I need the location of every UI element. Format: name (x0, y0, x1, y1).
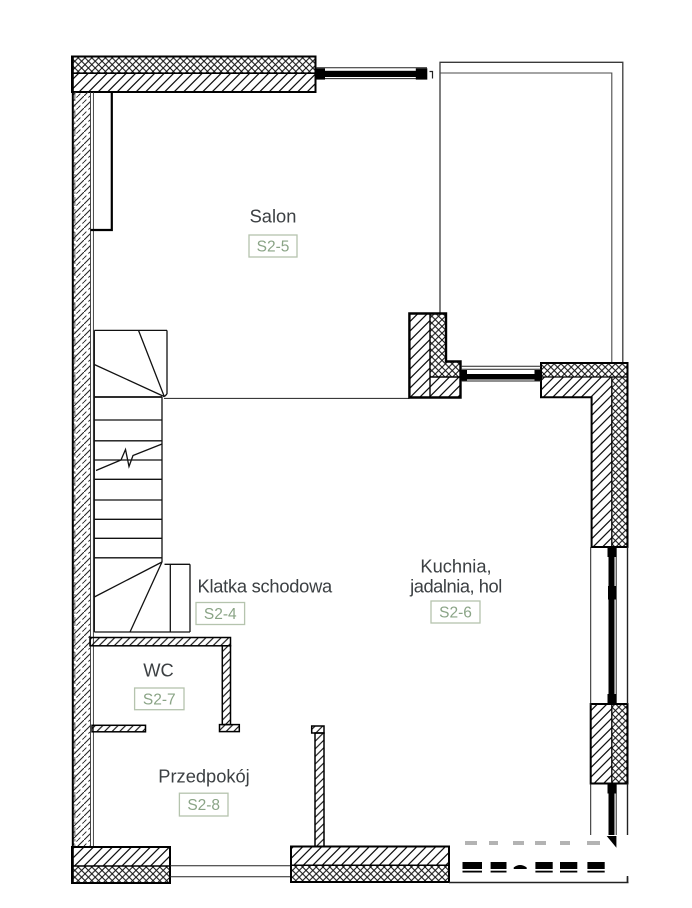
svg-text:jadalnia, hol: jadalnia, hol (409, 575, 502, 596)
svg-text:S2-8: S2-8 (187, 797, 220, 814)
svg-text:S2-5: S2-5 (257, 239, 290, 256)
svg-text:S2-4: S2-4 (204, 606, 237, 623)
svg-text:S2-6: S2-6 (439, 604, 472, 621)
svg-text:Kuchnia,: Kuchnia, (420, 555, 491, 576)
svg-text:WC: WC (143, 660, 173, 681)
svg-text:S2-7: S2-7 (143, 691, 176, 708)
svg-text:Klatka schodowa: Klatka schodowa (198, 576, 334, 597)
svg-text:Przedpokój: Przedpokój (158, 766, 249, 787)
svg-text:Salon: Salon (250, 206, 297, 227)
